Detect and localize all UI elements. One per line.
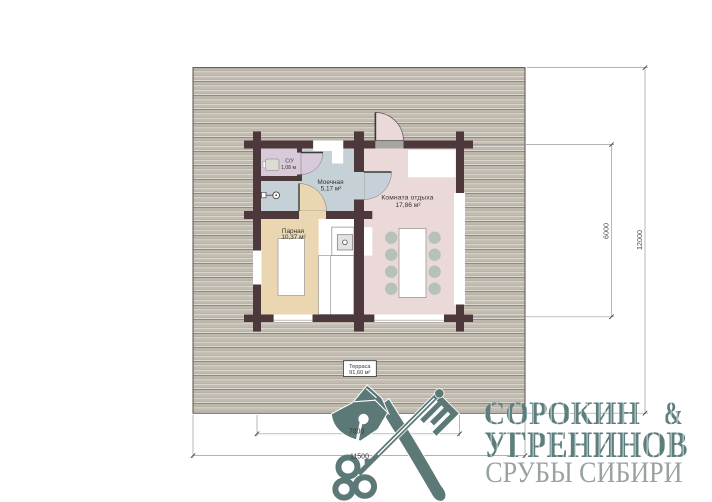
svg-text:СРУБЫ СИБИРИ: СРУБЫ СИБИРИ [485,457,682,489]
svg-text:6000: 6000 [602,223,611,239]
svg-text:Терраса: Терраса [349,364,371,370]
svg-text:10,37 м²: 10,37 м² [281,234,305,241]
svg-text:1,08 м: 1,08 м [281,165,297,171]
svg-text:11500: 11500 [350,453,369,460]
svg-text:С/У: С/У [285,159,294,165]
svg-text:5,17 м²: 5,17 м² [321,186,342,193]
svg-text:7000: 7000 [349,428,365,435]
svg-text:91,60 м²: 91,60 м² [349,370,370,376]
svg-text:17,86 м²: 17,86 м² [395,202,421,209]
svg-text:12000: 12000 [635,230,644,250]
svg-text:Комната отдыха: Комната отдыха [381,195,433,202]
